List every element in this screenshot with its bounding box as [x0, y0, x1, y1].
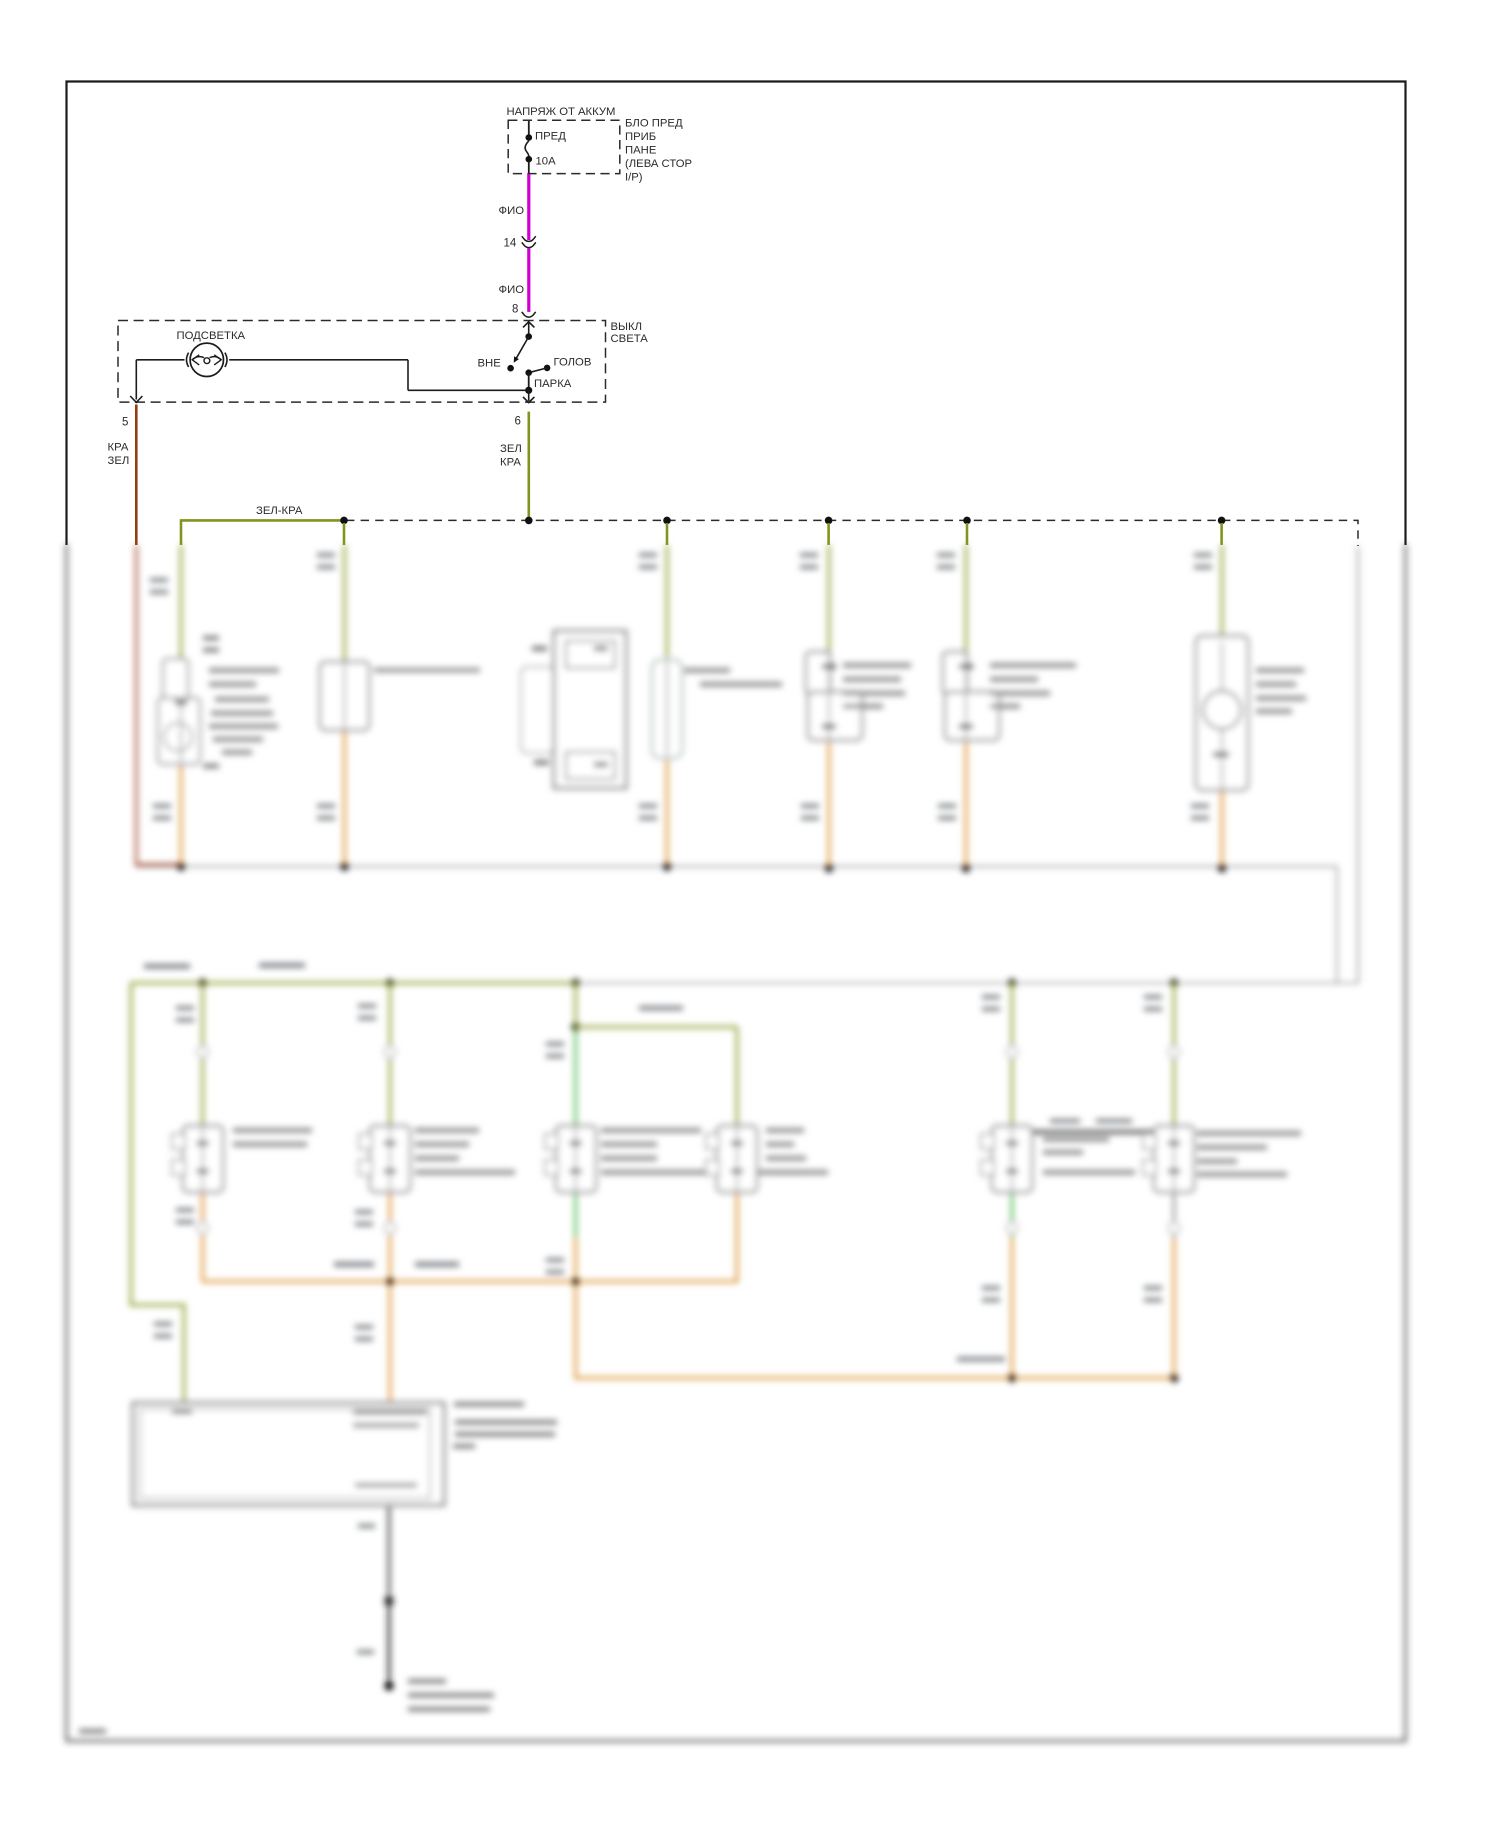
svg-text:ФИО: ФИО: [499, 284, 525, 296]
svg-text:ПРЕД: ПРЕД: [535, 131, 566, 143]
svg-text:ЗЕЛ-КРА: ЗЕЛ-КРА: [256, 505, 303, 517]
svg-text:НАПРЯЖ ОТ АККУМ: НАПРЯЖ ОТ АККУМ: [507, 106, 616, 118]
svg-text:ВНЕ: ВНЕ: [478, 358, 502, 370]
svg-text:14: 14: [504, 238, 517, 250]
svg-text:8: 8: [512, 303, 518, 315]
svg-text:ПАРКА: ПАРКА: [534, 378, 572, 390]
svg-text:5: 5: [122, 417, 128, 429]
svg-text:6: 6: [515, 415, 521, 427]
svg-text:КРАЗЕЛ: КРАЗЕЛ: [108, 442, 130, 468]
svg-text:ПОДСВЕТКА: ПОДСВЕТКА: [177, 330, 246, 342]
svg-text:ЗЕЛКРА: ЗЕЛКРА: [500, 443, 522, 469]
svg-text:10А: 10А: [536, 156, 557, 168]
svg-text:ФИО: ФИО: [499, 205, 525, 217]
svg-text:ГОЛОВ: ГОЛОВ: [554, 357, 592, 369]
